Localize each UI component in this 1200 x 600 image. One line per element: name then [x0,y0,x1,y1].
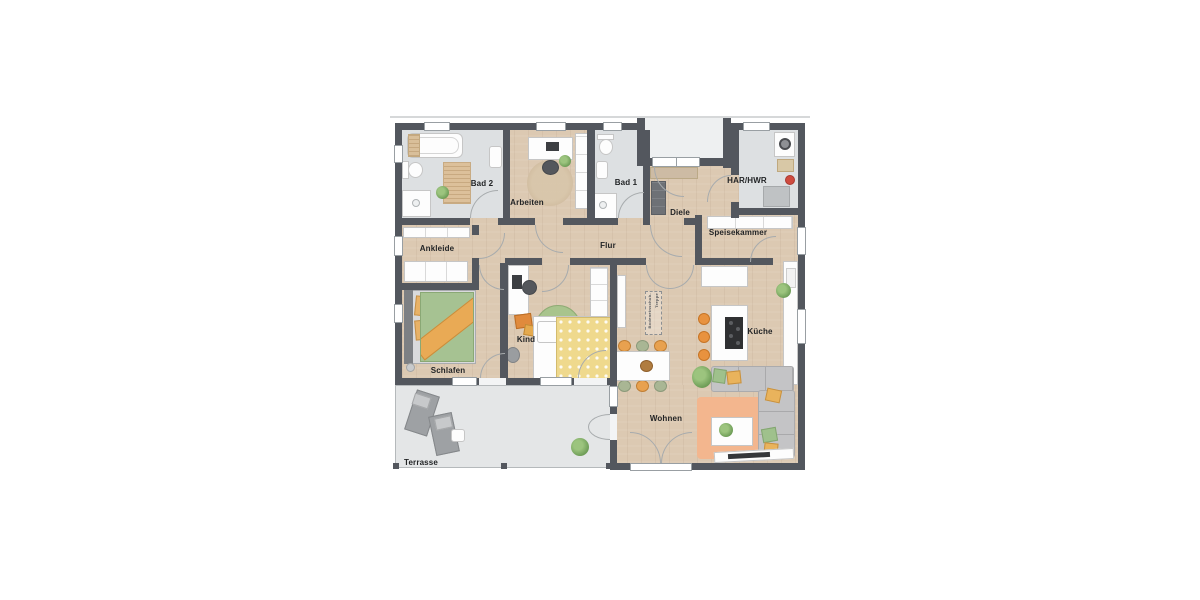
room-label-diele: Diele [670,209,690,217]
desk-chair-arbeiten [542,160,559,175]
desk-items-kind [512,275,522,289]
shower-head-bad1 [599,201,607,209]
washbasin-bad2 [489,146,502,168]
french-door-wohnen [630,463,692,471]
wall-bad1-diele [643,130,650,225]
window-kind-south [540,377,572,386]
blanket-fold [420,292,474,361]
desk-chair-kind [522,280,537,295]
room-label-schlafen: Schlafen [431,367,466,375]
laptop [546,142,559,151]
wall-right [798,123,805,470]
room-label-speisekammer: Speisekammer [709,229,767,237]
wardrobe-ankleide-top [403,227,470,238]
door-gap-kind-terrace [574,378,607,385]
wall-porch-bottom-right [700,158,731,166]
dining-chair [654,380,667,392]
wardrobe-ankleide-bottom [404,261,468,282]
window-arbeiten-north [536,122,566,131]
wall-corridor-n3 [563,218,618,225]
door-gap-schlafen-terrace [479,378,506,385]
dining-chair [618,380,631,392]
storage-chest [763,186,790,207]
wall-corridor-n2 [498,218,535,225]
teddy-bear [506,347,520,363]
room-label-kind: Kind [517,336,535,344]
plant-arbeiten [559,155,571,167]
toilet-bowl [408,162,423,178]
washing-machine-drum [779,138,791,150]
plant-terrace [571,438,589,456]
room-label-bad1: Bad 1 [615,179,638,187]
bar-stool [698,331,710,343]
entrance-porch [645,118,723,160]
bar-stool [698,349,710,361]
dining-chair [636,380,649,392]
window-wohnen-west [609,386,618,407]
attic-stairs-outline: Bodeneinschub- Treppe [645,291,662,335]
wall-corridor-n1 [402,218,470,225]
bed-headboard [404,290,413,364]
room-label-ankleide: Ankleide [420,245,455,253]
room-label-kueche: Küche [747,328,772,336]
toilet-bowl-bad1 [599,139,613,155]
side-table-terrace [451,429,465,442]
wall-corridor-s2 [570,258,646,265]
shelf-wohnen [617,275,626,328]
bucket [785,175,795,185]
bar-stool [698,313,710,325]
wall-marker-bt: BT [733,146,739,152]
wall-bad2-arbeiten [503,130,510,218]
wall-ankleide-east-lower [472,258,479,290]
door-gap-wohnen-terrace [610,414,617,440]
room-label-har-hwr: HAR/HWR [727,177,767,185]
burner [736,341,740,345]
washbasin-bad1 [596,161,608,179]
wall-har-west-lower [731,202,739,218]
room-label-arbeiten: Arbeiten [510,199,544,207]
entry-door [652,157,700,167]
wall-corridor-s1 [505,258,542,265]
window-bad2-west [394,145,403,163]
attic-stairs-label-2: Treppe [654,293,660,308]
shower-head [412,199,420,207]
sofa-pillow [761,427,778,443]
burner [729,321,733,325]
sofa-pillow [726,370,741,384]
plant-kitchen [776,283,791,298]
room-label-terrasse: Terrasse [404,459,438,467]
wall-ankleide-south [395,283,472,290]
window-bad1-north [603,122,622,131]
attic-stairs-label-1: Bodeneinschub- [647,293,653,329]
bath-mat [443,162,471,204]
room-label-bad2: Bad 2 [471,180,494,188]
wall-har-west-upper [731,130,739,175]
wardrobe-kind [590,267,608,317]
roof-line [390,116,810,118]
window-ankleide-west [394,236,403,256]
window-schlafen-south [452,377,477,386]
floor-plan-image: Bodeneinschub- Treppe [0,0,1200,600]
table-centerpiece [640,360,653,372]
wall-har-south [739,208,798,215]
bedroom-lamp [406,363,415,372]
wall-arbeiten-bad1 [587,130,595,218]
kitchen-sideboard [701,266,748,287]
plant-living [692,366,712,388]
terrace-post [501,463,507,469]
plant-bad2 [436,186,449,199]
window-schlafen-west [394,304,403,323]
room-label-wohnen: Wohnen [650,415,682,423]
wall-ankleide-east-upper [472,225,479,235]
sofa-pillow [712,368,727,384]
table-plant [719,423,733,437]
terrace-post [393,463,399,469]
window-har-north [743,122,770,131]
window-bad2-north [424,122,450,131]
cooktop [725,317,743,349]
bath-tray [408,134,420,157]
window-kitchen-east-2 [797,309,806,344]
burner [729,334,733,338]
sofa-pillow [765,388,782,404]
burner [736,327,740,331]
bed-blanket [420,292,474,362]
laundry-basket [777,159,794,172]
window-kitchen-east-1 [797,227,806,255]
room-label-flur: Flur [600,242,616,250]
